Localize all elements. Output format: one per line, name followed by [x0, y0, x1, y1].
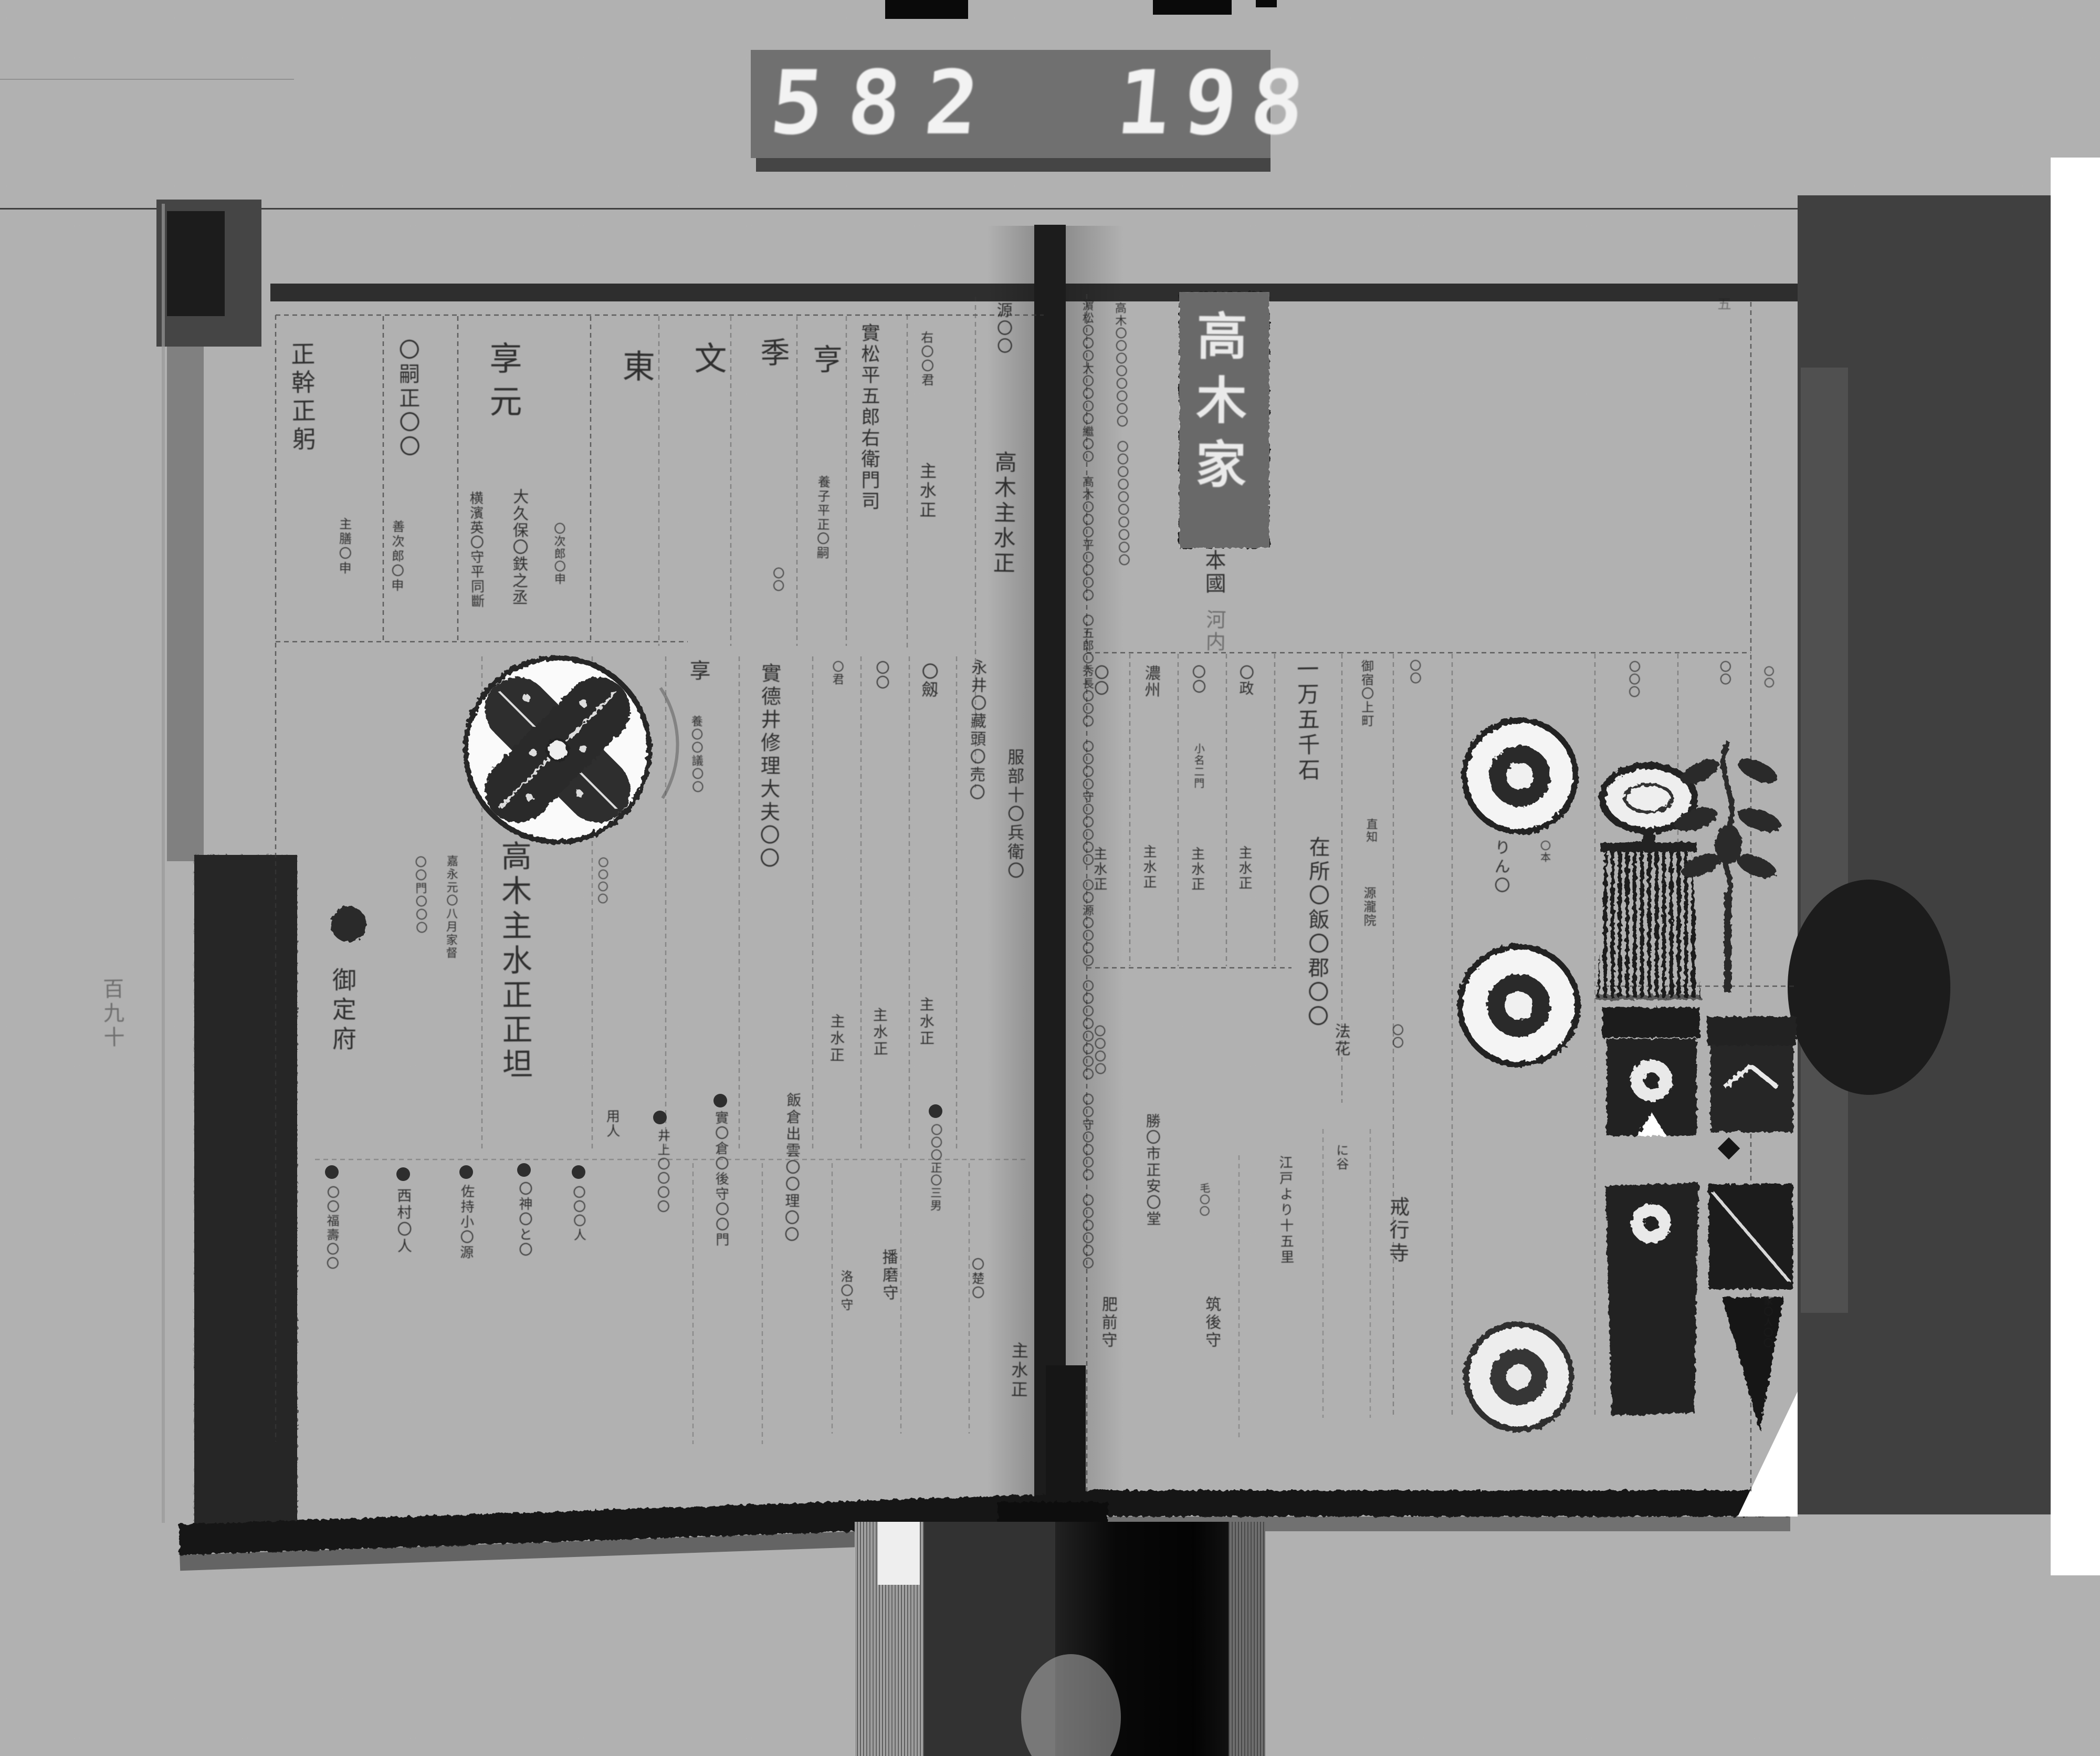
col-yoshi-sub: 養子平正〇嗣: [813, 475, 829, 643]
col-b-m4: 〇神〇と〇: [517, 1182, 531, 1365]
col-rc2s: 主水正: [1141, 844, 1156, 955]
col-rr2: 家〇人〇〇: [1761, 1296, 1772, 1412]
col-rb2: 肥前守: [1099, 1296, 1116, 1417]
col-rt1: 〇〇〇: [1626, 661, 1639, 745]
col-migi: 右〇〇君: [919, 331, 934, 441]
col-k3c: 〇次郎〇申: [552, 522, 564, 633]
col-rc1: 〇〇: [1093, 665, 1108, 733]
scan-line-faint: [0, 79, 294, 80]
col-migi-mondo: 主水正: [917, 462, 936, 588]
col-rb6: 〇〇: [1390, 1024, 1402, 1082]
col-rb5: 筑後守: [1203, 1296, 1220, 1417]
col-rc1s: 主水正: [1091, 846, 1106, 957]
col-kyogen: 享元: [486, 341, 519, 473]
col-h1s: 主水正: [827, 1013, 845, 1134]
ring-crest-3: [1466, 1324, 1571, 1429]
film-notch: [1153, 0, 1232, 15]
col-higashi: 東: [618, 349, 653, 402]
scanned-bukan-spread: 582 198 正幹正躬主膳〇申〇嗣正〇〇善次郎〇申享元横濱英〇守平同斷大久保〇…: [0, 0, 2100, 1756]
col-h2s: 主水正: [871, 1007, 888, 1128]
col-sanematsu: 實松平五郎右衛門司: [859, 323, 878, 649]
col-kaigyoji: 戒行寺: [1384, 1196, 1408, 1370]
col-shokan-sub: 主膳〇申: [337, 517, 351, 633]
col-hon: 〇本: [1539, 840, 1550, 903]
col-zaisho: 在所〇飯〇郡〇〇: [1304, 836, 1328, 1120]
tassel-standard: [1596, 766, 1701, 1000]
col-b-m1: 〇〇福壽〇〇: [323, 1186, 338, 1380]
col-b-m6: 井上〇〇〇〇: [654, 1129, 669, 1318]
col-rb1: 〇〇〇〇: [1092, 1025, 1106, 1156]
scan-decoration: [0, 0, 2100, 1756]
col-honkoku: 本國: [1202, 549, 1224, 607]
banner-1: [1602, 1007, 1700, 1136]
col-sue: 季: [757, 337, 788, 388]
col-k2: 〇嗣正〇〇: [396, 339, 418, 528]
col-sue-sub: 〇〇: [770, 567, 783, 630]
ring-crest-1: [1464, 720, 1576, 832]
scan-line: [0, 208, 2100, 210]
col-koku: 一万五千石: [1295, 657, 1320, 826]
title-takagi-ke: 高木家: [1190, 310, 1244, 531]
col-province: 河内: [1203, 609, 1224, 662]
col-mid-n5: 服部十〇兵衛〇: [1006, 748, 1023, 1042]
counter-digits-right: 198: [1114, 59, 1321, 147]
col-rc4: 〇政: [1237, 665, 1254, 733]
col-toru: 亨: [810, 344, 841, 394]
col-b-m13: 主水正: [1008, 1342, 1027, 1473]
col-kaei: 嘉永元〇八月家督: [443, 855, 457, 1128]
col-b-m2: 西村〇人: [396, 1188, 412, 1361]
col-hokke: 法花: [1332, 1023, 1349, 1096]
col-mid-kyos: 養〇〇議〇〇: [689, 715, 703, 889]
col-b-m12: 〇楚〇: [970, 1258, 983, 1363]
col-b-m9: 洛〇守: [839, 1270, 852, 1375]
col-okubo: 大久保〇鉄之丞: [510, 488, 528, 643]
folio-mark: 五: [1716, 297, 1730, 318]
col-fumi: 文: [690, 341, 724, 394]
col-genryuin: 源瀧院: [1362, 886, 1375, 976]
ring-crest-2: [1460, 947, 1578, 1064]
book-spine: [855, 1502, 1265, 1756]
col-mid-kyo: 享: [687, 660, 709, 696]
col-rc3: 〇〇: [1190, 665, 1205, 728]
col-yado: 御宿〇上町: [1359, 660, 1373, 796]
col-b-m11: 〇〇〇正〇三男: [928, 1124, 941, 1302]
teifu-bullet: [331, 906, 366, 942]
col-yokohama: 横濱英〇守平同斷: [468, 491, 484, 641]
col-b-m7: 實〇倉〇後守〇〇門: [713, 1111, 729, 1405]
ink-streak-band: [194, 855, 297, 1527]
banner-3: [1605, 1183, 1698, 1416]
col-nagai-long: 實德井修理大夫〇〇: [755, 663, 780, 1083]
col-h3: 〇劔: [919, 663, 938, 741]
col-kana: りん〇: [1492, 839, 1509, 955]
col-k2-sub: 善次郎〇申: [388, 520, 404, 641]
col-takagi-mondo: 高木主水正: [990, 451, 1016, 656]
col-gojofu: 御定府: [330, 967, 355, 1141]
col-naoshi: 直知: [1363, 818, 1377, 876]
page-edge-texture: [1788, 158, 2100, 1575]
col-shokan: 正幹正躬: [288, 341, 317, 568]
col-h2: 〇〇: [874, 661, 888, 724]
col-b-m10: 播磨守: [880, 1249, 898, 1385]
col-rc4s: 主水正: [1237, 845, 1251, 956]
col-rt2: 〇〇: [1718, 661, 1730, 724]
margin-note: 百九十: [100, 978, 123, 1104]
col-rc3s: 主水正: [1189, 846, 1204, 957]
col-rf1: 〇〇: [1408, 660, 1420, 717]
banner-2: [1707, 1017, 1797, 1132]
col-rc2: 濃州: [1142, 665, 1159, 738]
col-minamoto: 源〇〇: [995, 302, 1012, 396]
col-b-m5: 〇〇〇人: [571, 1186, 586, 1343]
counter-digits-left: 582: [767, 59, 1006, 147]
col-rr1: 〇〇: [1762, 666, 1774, 718]
col-rb3: 勝〇市正安〇堂: [1145, 1113, 1162, 1407]
col-note1: 濵松〇〇〇大〇〇〇〇繼〇〇 高木〇〇〇平〇〇〇〇 〇五郎〇秀長〇〇〇 〇〇〇〇守…: [1080, 299, 1093, 1476]
film-notch: [885, 0, 968, 19]
col-rc3n: 小名二門: [1192, 743, 1204, 832]
col-niya: に谷: [1335, 1144, 1348, 1212]
col-rb4: 毛〇〇: [1198, 1183, 1210, 1267]
col-masahira: 高木主水正正坦: [498, 840, 531, 1187]
col-h1: 〇君: [831, 661, 843, 718]
col-edo: 江戸より十五里: [1277, 1155, 1295, 1386]
film-notch: [1256, 0, 1277, 7]
col-h3s: 主水正: [918, 997, 934, 1117]
col-b-m3: 佐持小〇源: [456, 1184, 474, 1373]
col-yonin: 用人: [604, 1109, 619, 1172]
